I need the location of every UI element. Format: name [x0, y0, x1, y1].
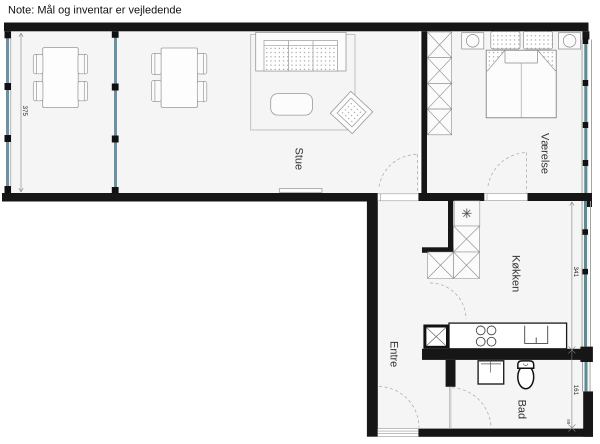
svg-text:161: 161	[572, 385, 579, 396]
svg-text:Bad: Bad	[516, 400, 528, 420]
svg-text:Entre: Entre	[388, 341, 400, 367]
svg-text:Note: Mål og inventar er vejle: Note: Mål og inventar er vejledende	[8, 5, 182, 17]
svg-text:Stue: Stue	[293, 148, 305, 171]
svg-text:375: 375	[21, 106, 28, 117]
svg-text:Værelse: Værelse	[539, 133, 551, 174]
svg-text:341: 341	[572, 267, 579, 278]
svg-text:88: 88	[566, 419, 571, 425]
svg-text:Køkken: Køkken	[510, 255, 522, 292]
